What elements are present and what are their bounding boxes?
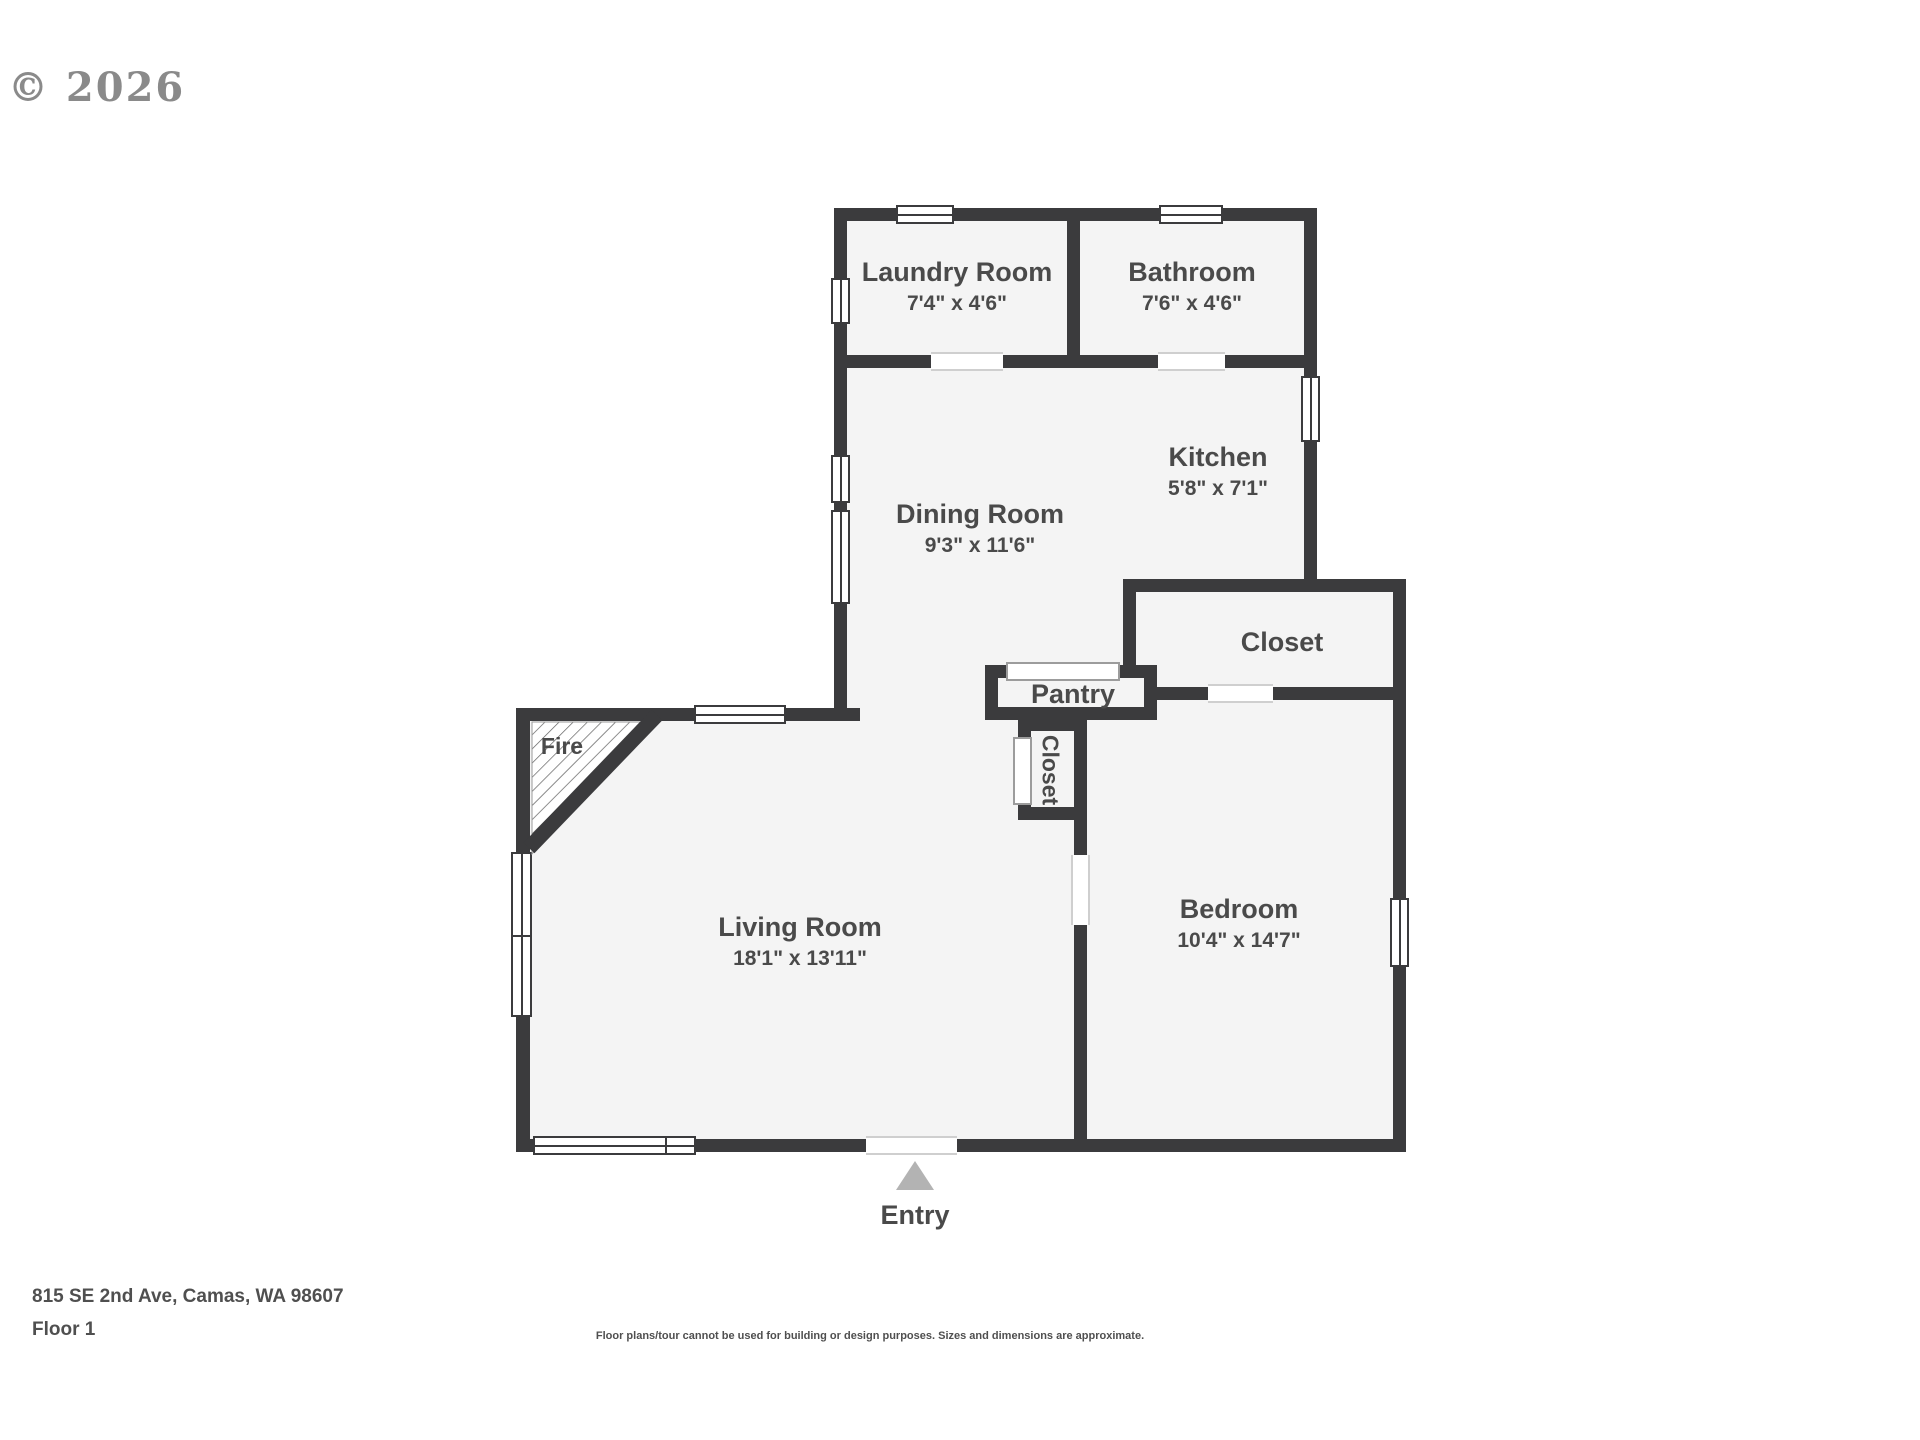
wall-segment <box>1123 579 1136 672</box>
copyright-watermark: © 2026 <box>8 64 185 111</box>
room-dims: 7'4" x 4'6" <box>862 291 1053 316</box>
door-opening-entry <box>866 1136 957 1155</box>
room-name: Kitchen <box>1168 442 1268 473</box>
room-name: Living Room <box>718 912 882 943</box>
room-dims: 9'3" x 11'6" <box>896 533 1064 558</box>
wall-segment <box>1150 687 1406 700</box>
wall-segment <box>1118 665 1157 678</box>
entry-label: Entry <box>880 1200 949 1231</box>
room-dims: 10'4" x 14'7" <box>1177 928 1300 953</box>
room-name: Bathroom <box>1128 257 1256 288</box>
room-fill-dining-lower <box>840 592 1123 671</box>
room-label-bedroom: Bedroom 10'4" x 14'7" <box>1177 894 1300 953</box>
room-label-kitchen: Kitchen 5'8" x 7'1" <box>1168 442 1268 501</box>
room-label-closet-hall: Closet <box>1035 735 1066 805</box>
window <box>694 705 786 724</box>
window <box>533 1136 696 1155</box>
room-label-dining: Dining Room 9'3" x 11'6" <box>896 499 1064 558</box>
window <box>1301 376 1320 442</box>
room-name: Dining Room <box>896 499 1064 530</box>
room-dims: 18'1" x 13'11" <box>718 946 882 971</box>
wall-segment <box>1067 221 1080 355</box>
door-opening-bathroom <box>1158 352 1225 371</box>
room-label-bathroom: Bathroom 7'6" x 4'6" <box>1128 257 1256 316</box>
room-label-closet-upper: Closet <box>1241 627 1324 658</box>
room-name: Closet <box>1241 627 1324 658</box>
window <box>896 205 954 224</box>
room-name: Closet <box>1035 735 1066 805</box>
floor-number: Floor 1 <box>32 1319 95 1341</box>
window <box>831 510 850 604</box>
wall-segment <box>1074 718 1087 1152</box>
fireplace-label: Fire <box>541 733 583 760</box>
window <box>831 455 850 503</box>
door-opening-bedroom <box>1071 855 1090 925</box>
room-name: Bedroom <box>1177 894 1300 925</box>
room-name: Pantry <box>1031 679 1115 710</box>
door-opening-closet-upper <box>1208 684 1273 703</box>
fireplace-icon <box>516 708 676 868</box>
disclaimer-text: Floor plans/tour cannot be used for buil… <box>596 1330 1144 1342</box>
room-label-living: Living Room 18'1" x 13'11" <box>718 912 882 971</box>
window <box>511 852 532 1017</box>
door-opening-laundry <box>931 352 1003 371</box>
room-label-pantry: Pantry <box>1031 679 1115 710</box>
window <box>1390 898 1409 967</box>
entry-arrow-icon <box>896 1161 934 1190</box>
room-name: Laundry Room <box>862 257 1053 288</box>
window <box>1159 205 1223 224</box>
room-fill-passage <box>840 671 985 714</box>
wall-segment <box>1393 579 1406 1152</box>
room-label-laundry: Laundry Room 7'4" x 4'6" <box>862 257 1053 316</box>
room-dims: 7'6" x 4'6" <box>1128 291 1256 316</box>
wall-segment <box>834 355 1317 368</box>
wall-segment <box>1123 579 1406 592</box>
door-closet-hall <box>1013 737 1032 805</box>
window <box>831 278 850 324</box>
room-dims: 5'8" x 7'1" <box>1168 476 1268 501</box>
address-text: 815 SE 2nd Ave, Camas, WA 98607 <box>32 1286 344 1308</box>
floor-plan: © 2026 <box>0 0 1920 1440</box>
